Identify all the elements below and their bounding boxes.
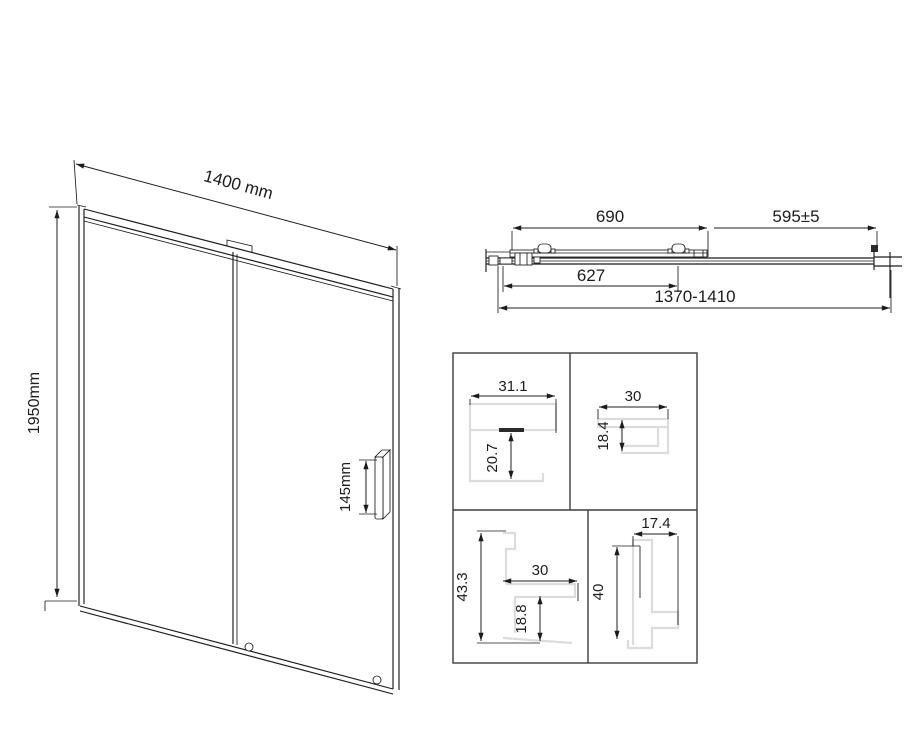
door-handle xyxy=(375,450,390,519)
drawing-svg: 1400 mm 1950mm 145mm xyxy=(0,0,906,737)
front-bottom-rail xyxy=(80,606,393,694)
roller-right xyxy=(667,244,690,253)
front-right-frame xyxy=(391,286,401,690)
grid-outer-border xyxy=(453,353,697,663)
plan-track xyxy=(486,258,874,264)
bottom-roller-left xyxy=(245,643,253,651)
plan-overall-label: 1370-1410 xyxy=(654,287,735,306)
plan-fixed-panel-label: 595±5 xyxy=(772,207,819,226)
bl-height-label: 43.3 xyxy=(454,572,471,601)
plan-right-wall-profile xyxy=(871,245,902,298)
front-height-label: 1950mm xyxy=(26,372,43,434)
front-left-frame xyxy=(77,205,86,606)
dim-plan-overall: 1370-1410 xyxy=(498,266,891,313)
dim-front-width: 1400 mm xyxy=(74,160,397,286)
plan-door-panel-label: 690 xyxy=(596,207,624,226)
profile-detail-top-right: 30 18.4 xyxy=(595,388,668,453)
dim-handle-height: 145mm xyxy=(337,460,377,514)
tl-depth-label: 20.7 xyxy=(484,443,501,472)
dim-plan-glass: 627 xyxy=(503,266,678,292)
roller-left xyxy=(533,244,556,253)
dim-plan-fixed-panel: 595±5 xyxy=(714,207,877,248)
dim-front-height: 1950mm xyxy=(26,207,77,611)
bl-depth-label: 18.8 xyxy=(513,604,530,633)
front-middle-stile xyxy=(233,252,237,645)
tl-width-label: 31.1 xyxy=(498,378,527,395)
profile-detail-bottom-right: 17.4 40 xyxy=(590,515,678,648)
plan-sliding-panel xyxy=(510,244,707,257)
bl-width-label: 30 xyxy=(532,562,549,579)
front-view: 1400 mm 1950mm 145mm xyxy=(26,160,401,694)
bottom-roller-right xyxy=(373,676,381,684)
top-view: 690 595±5 627 1370-1410 xyxy=(486,207,902,313)
profile-details-grid: 31.1 20.7 30 18.4 43.3 30 xyxy=(453,353,697,663)
front-top-rail xyxy=(84,209,393,301)
br-height-label: 40 xyxy=(590,584,607,601)
profile-detail-bottom-left: 43.3 30 18.8 xyxy=(454,531,578,643)
front-width-label: 1400 mm xyxy=(202,166,275,203)
br-width-label: 17.4 xyxy=(641,515,670,532)
shower-door-technical-drawing: 1400 mm 1950mm 145mm xyxy=(0,0,906,737)
plan-glass-label: 627 xyxy=(577,266,605,285)
handle-height-label: 145mm xyxy=(337,462,354,512)
tr-depth-label: 18.4 xyxy=(595,421,612,450)
tr-width-label: 30 xyxy=(625,388,642,405)
rail-bracket xyxy=(227,240,252,252)
profile-detail-top-left: 31.1 20.7 xyxy=(470,378,556,481)
